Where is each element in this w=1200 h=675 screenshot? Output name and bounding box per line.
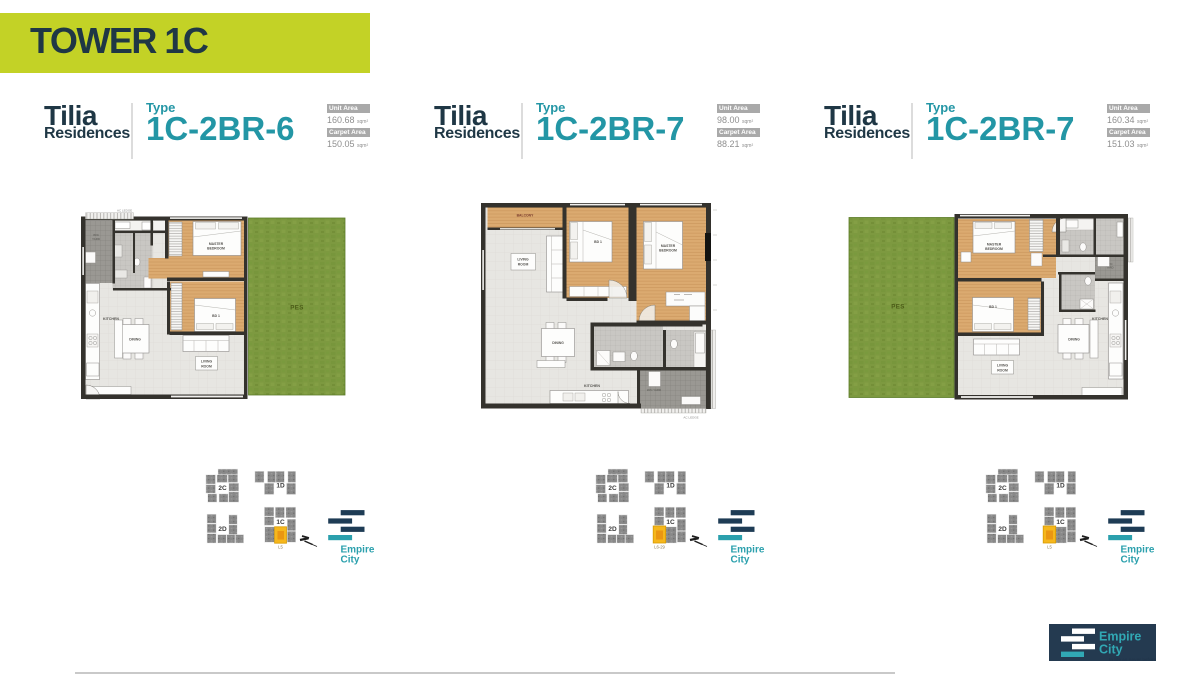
svg-text:LIVING: LIVING [517, 258, 529, 262]
svg-text:BD 1: BD 1 [989, 305, 997, 309]
svg-text:PES: PES [290, 305, 304, 312]
svg-text:AC LEDGE: AC LEDGE [117, 209, 132, 213]
svg-text:L6-29: L6-29 [654, 545, 665, 550]
svg-text:AC LEDGE: AC LEDGE [683, 416, 698, 420]
svg-text:YARD: YARD [92, 237, 101, 241]
svg-text:BD 1: BD 1 [212, 314, 220, 318]
svg-text:DINING: DINING [552, 341, 564, 345]
svg-text:MASTER: MASTER [661, 244, 676, 248]
svg-text:DINING: DINING [1068, 338, 1080, 342]
svg-text:LIVING: LIVING [997, 364, 1009, 368]
svg-text:ROOM: ROOM [997, 369, 1008, 373]
svg-text:DINING: DINING [129, 338, 141, 342]
svg-text:PES: PES [891, 304, 905, 311]
svg-text:ROOM: ROOM [518, 263, 529, 267]
svg-text:W/C YARD: W/C YARD [647, 388, 661, 392]
svg-text:BEDROOM: BEDROOM [985, 247, 1003, 251]
svg-text:ROOM: ROOM [201, 365, 212, 369]
svg-text:BD 1: BD 1 [594, 240, 602, 244]
svg-text:BEDROOM: BEDROOM [659, 249, 677, 253]
svg-text:BALCONY: BALCONY [517, 214, 535, 218]
svg-text:MASTER: MASTER [209, 242, 224, 246]
svg-text:L5: L5 [278, 545, 283, 550]
svg-text:LIVING: LIVING [201, 360, 213, 364]
svg-text:L5: L5 [1047, 545, 1052, 550]
svg-text:City: City [1099, 643, 1123, 657]
svg-text:MASTER: MASTER [987, 243, 1002, 247]
svg-text:Empire: Empire [1099, 630, 1141, 644]
svg-text:KITCHEN: KITCHEN [584, 384, 600, 388]
svg-text:BEDROOM: BEDROOM [207, 247, 225, 251]
